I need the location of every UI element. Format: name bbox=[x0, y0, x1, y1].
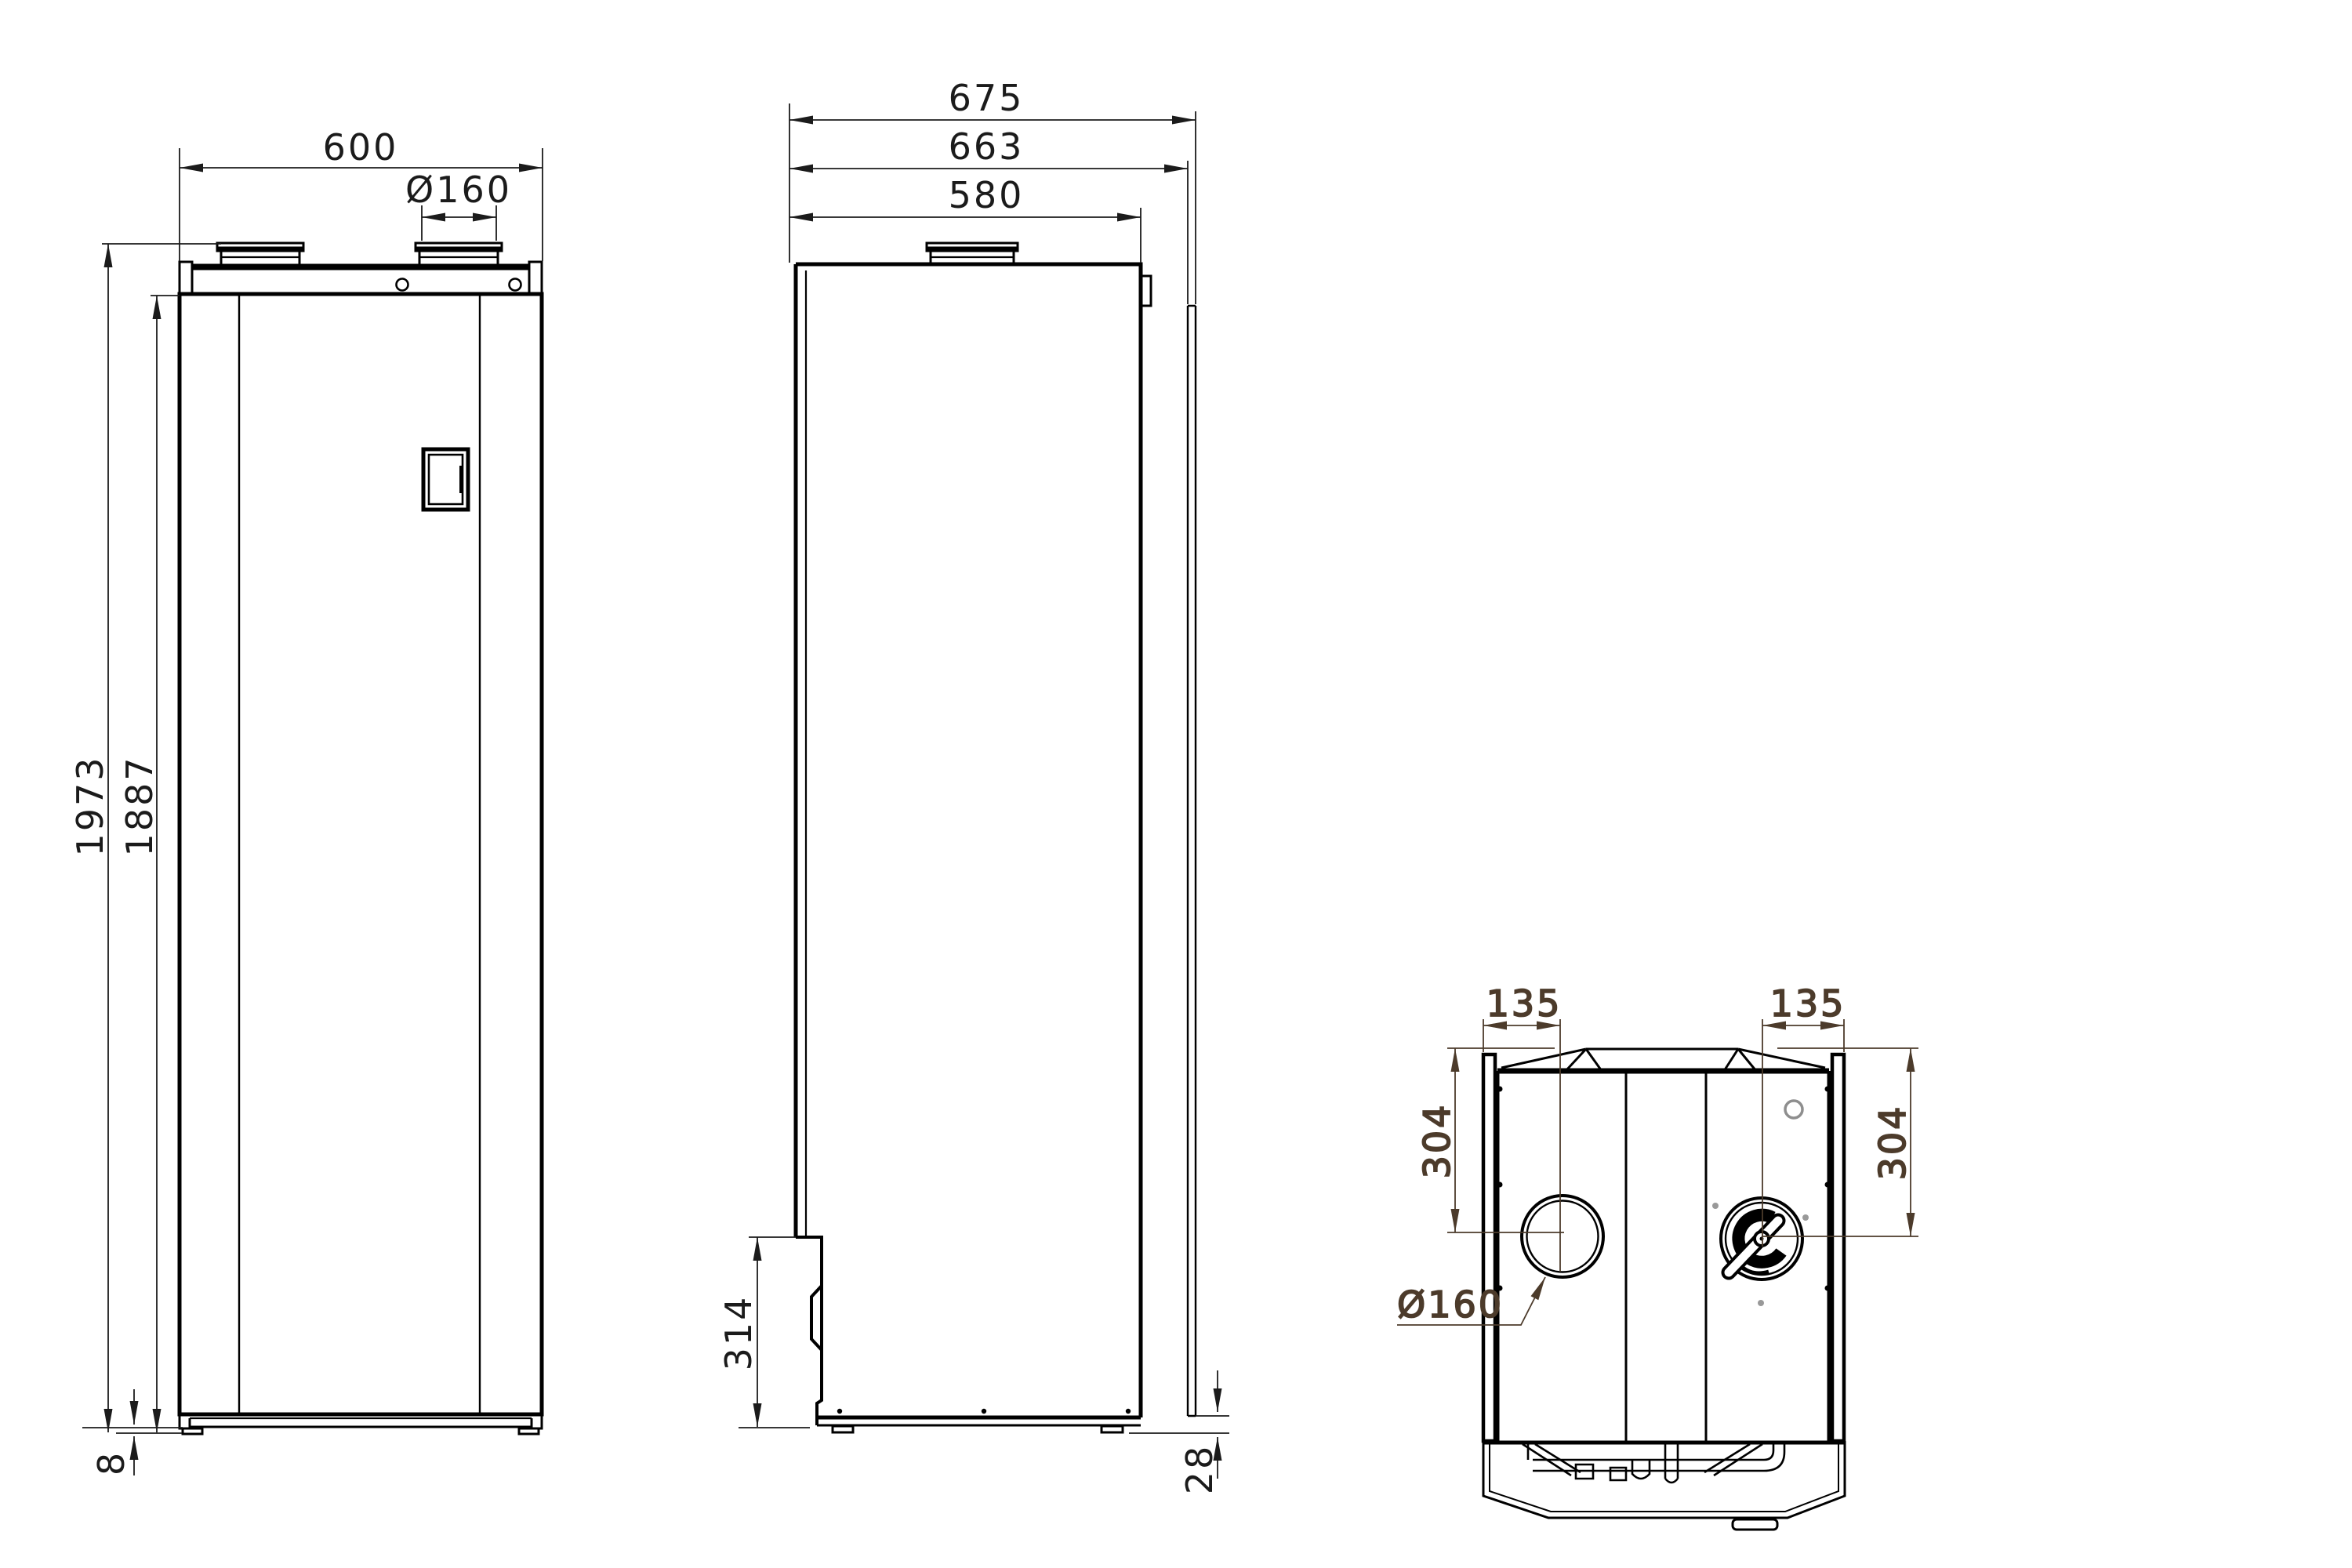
top-panel-seams bbox=[1626, 1071, 1706, 1441]
dim-top-offset-right-label: 135 bbox=[1770, 982, 1846, 1025]
side-front-step-handle bbox=[796, 1237, 822, 1425]
dim-front-foot-label: 8 bbox=[90, 1450, 132, 1475]
top-center-extensions bbox=[1447, 1048, 1918, 1236]
top-view: 135 135 304 304 Ø160 bbox=[1397, 982, 1918, 1530]
front-body-outline bbox=[180, 294, 542, 1414]
top-roof-plate bbox=[1501, 1049, 1825, 1071]
top-small-hole bbox=[1785, 1101, 1802, 1118]
top-view-dimensions: 135 135 304 304 Ø160 bbox=[1397, 982, 1918, 1326]
front-screw-hole-left bbox=[397, 279, 408, 291]
dim-top-center-right-label: 304 bbox=[1871, 1105, 1914, 1181]
dim-side-recess-label: 314 bbox=[717, 1295, 760, 1371]
front-display-inner bbox=[429, 455, 463, 504]
front-view-outline bbox=[180, 243, 542, 1434]
dim-side-clearance-extensions bbox=[1129, 1416, 1229, 1433]
side-rear-panel bbox=[1188, 306, 1196, 1416]
top-duct-opening-left-outer bbox=[1522, 1196, 1603, 1277]
top-base-tab bbox=[1733, 1519, 1777, 1530]
side-view-outline bbox=[796, 243, 1196, 1432]
dim-side-total-depth-label: 675 bbox=[949, 77, 1025, 119]
side-base-screw-1 bbox=[837, 1409, 842, 1414]
dim-front-duct-label: Ø160 bbox=[405, 169, 512, 211]
top-body-sides bbox=[1483, 1071, 1844, 1443]
top-duct-opening-left-inner bbox=[1527, 1201, 1599, 1272]
dim-top-offset-left-label: 135 bbox=[1486, 982, 1563, 1025]
dim-side-clearance-label: 28 bbox=[1178, 1444, 1221, 1495]
top-base-piping bbox=[1523, 1443, 1784, 1483]
side-base-screw-3 bbox=[1126, 1409, 1131, 1414]
dim-front-width-label: 600 bbox=[323, 126, 399, 169]
dim-top-center-left-label: 304 bbox=[1416, 1103, 1458, 1179]
dim-top-duct-label: Ø160 bbox=[1397, 1283, 1504, 1326]
front-duct-collars bbox=[217, 243, 502, 265]
side-base-feet bbox=[817, 1425, 1141, 1432]
drawing-page: 600 Ø160 1973 1887 8 bbox=[0, 0, 2352, 1568]
technical-drawing: 600 Ø160 1973 1887 8 bbox=[0, 0, 2352, 1568]
top-base-outer bbox=[1483, 1441, 1845, 1518]
top-view-outline bbox=[1483, 1049, 1845, 1530]
side-duct-collar bbox=[927, 243, 1018, 264]
front-view-dimensions: 600 Ø160 1973 1887 8 bbox=[69, 126, 543, 1475]
top-base-inner bbox=[1490, 1441, 1838, 1512]
fan-gray-dot-1 bbox=[1712, 1203, 1719, 1209]
front-panel-seams bbox=[239, 294, 480, 1414]
fan-gray-dot-2 bbox=[1802, 1214, 1809, 1221]
dim-side-panel-depth-label: 663 bbox=[949, 125, 1025, 168]
front-plinth-feet bbox=[180, 1414, 542, 1434]
top-side-flanges bbox=[1483, 1054, 1844, 1441]
dim-front-total-height-label: 1973 bbox=[69, 755, 111, 856]
side-body-outline bbox=[796, 264, 1141, 1417]
dim-front-body-height-label: 1887 bbox=[118, 755, 161, 856]
fan-gray-dot-3 bbox=[1758, 1300, 1764, 1306]
side-view: 675 663 580 314 28 bbox=[717, 77, 1229, 1494]
dim-side-body-depth-label: 580 bbox=[949, 174, 1025, 216]
top-offset-extensions bbox=[1483, 1019, 1844, 1272]
side-base-screw-2 bbox=[982, 1409, 986, 1414]
front-screw-hole-right bbox=[510, 279, 521, 291]
front-view: 600 Ø160 1973 1887 8 bbox=[69, 126, 543, 1475]
